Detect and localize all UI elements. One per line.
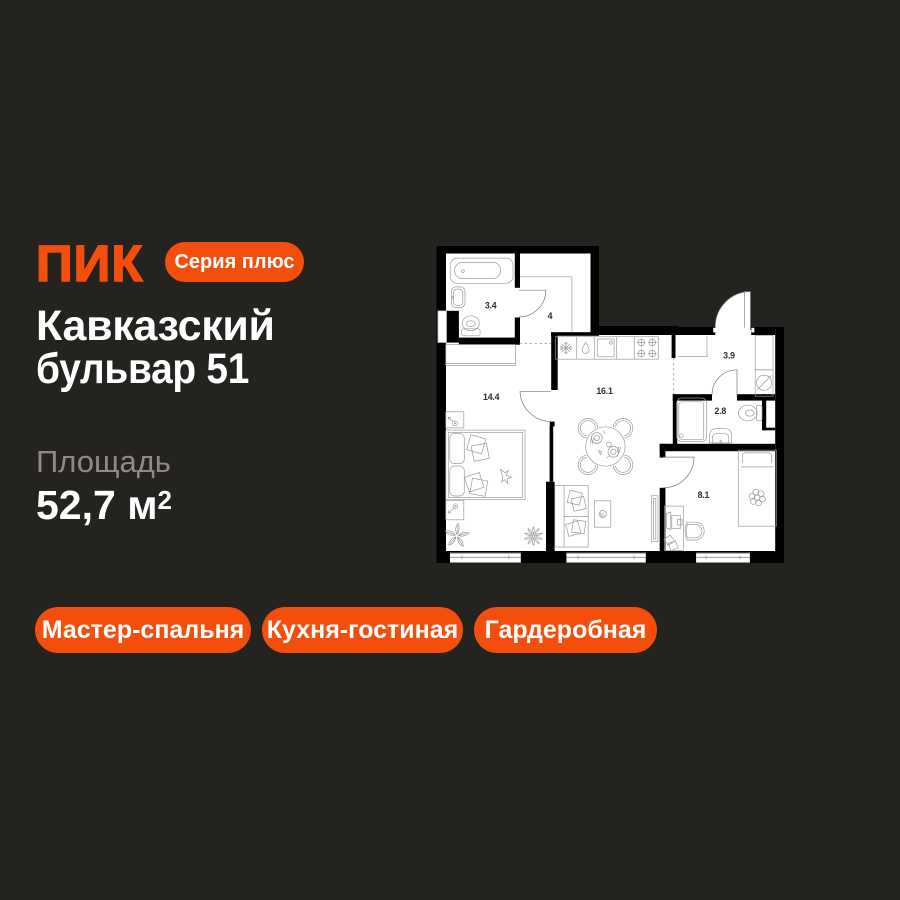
svg-text:8.1: 8.1 — [698, 490, 710, 500]
svg-text:3.9: 3.9 — [723, 351, 735, 361]
svg-text:16.1: 16.1 — [596, 386, 613, 396]
svg-text:14.4: 14.4 — [483, 392, 500, 402]
svg-text:4: 4 — [548, 311, 553, 321]
svg-text:2.8: 2.8 — [714, 406, 726, 416]
svg-text:3.4: 3.4 — [485, 301, 497, 311]
